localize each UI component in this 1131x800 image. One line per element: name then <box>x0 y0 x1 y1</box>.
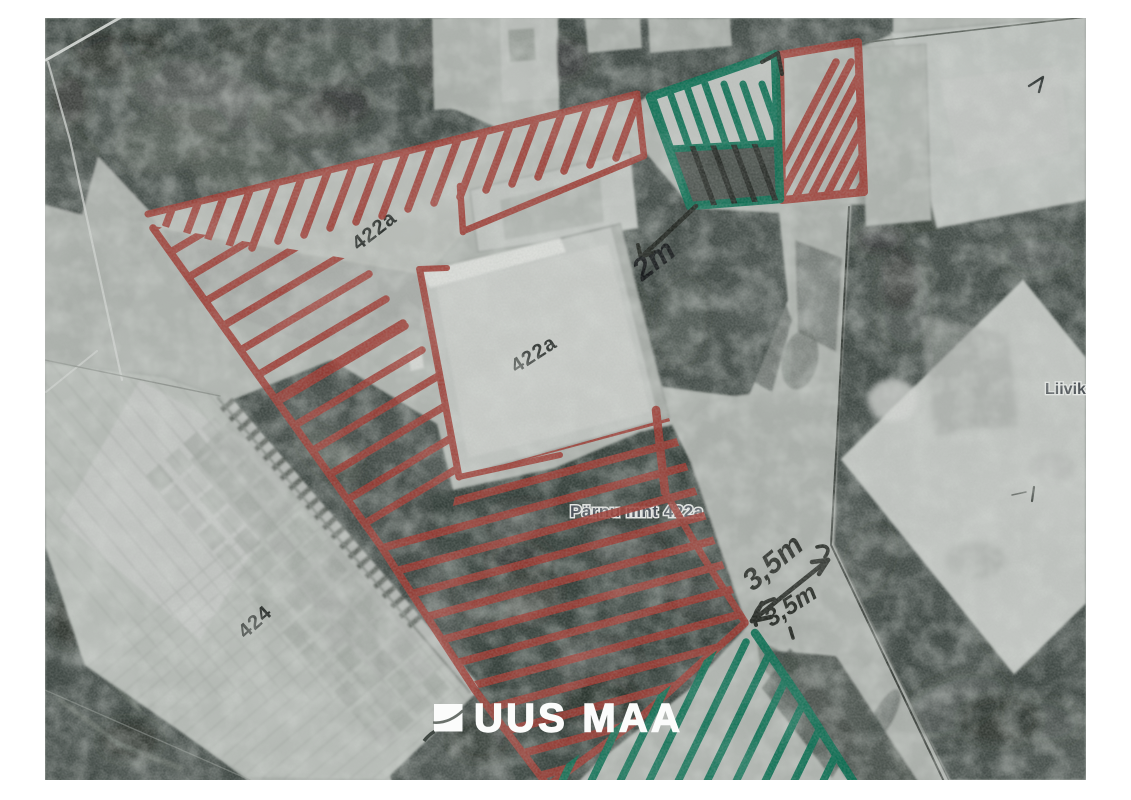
svg-text:UUS MAA: UUS MAA <box>474 697 683 741</box>
